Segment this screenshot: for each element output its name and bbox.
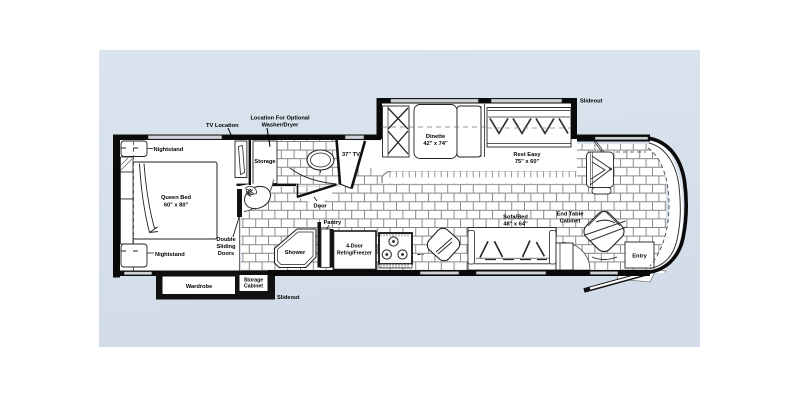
svg-text:Doors: Doors	[218, 251, 234, 257]
svg-text:Dinette: Dinette	[426, 134, 445, 140]
svg-text:Shower: Shower	[285, 250, 306, 256]
svg-text:Refrig/Freezer: Refrig/Freezer	[337, 251, 372, 257]
svg-text:TV Location: TV Location	[206, 123, 239, 129]
svg-text:75" x 60": 75" x 60"	[515, 159, 540, 165]
svg-text:Sofa/Bed: Sofa/Bed	[503, 215, 528, 221]
svg-text:Cabinet: Cabinet	[244, 284, 263, 290]
svg-text:Entry: Entry	[632, 254, 647, 260]
svg-text:37" TV: 37" TV	[342, 152, 360, 158]
svg-text:Storage: Storage	[254, 159, 275, 165]
svg-text:Wardrobe: Wardrobe	[186, 284, 212, 290]
svg-text:Pantry: Pantry	[324, 220, 343, 226]
svg-text:4-Door: 4-Door	[346, 244, 363, 250]
svg-text:Double: Double	[216, 237, 235, 243]
svg-text:Location For Optional: Location For Optional	[250, 116, 310, 122]
svg-text:Door: Door	[314, 204, 328, 210]
svg-text:60" x 80": 60" x 80"	[164, 203, 189, 209]
svg-text:Nightstand: Nightstand	[154, 147, 184, 153]
svg-text:End Table: End Table	[557, 212, 584, 218]
svg-text:42" x 74": 42" x 74"	[423, 141, 448, 147]
svg-text:Slideout: Slideout	[580, 99, 603, 105]
svg-text:Queen Bed: Queen Bed	[161, 195, 192, 201]
svg-text:Nightstand: Nightstand	[155, 252, 185, 258]
svg-text:48" x 64": 48" x 64"	[503, 222, 528, 228]
svg-text:Slideout: Slideout	[277, 295, 300, 301]
svg-text:Washer/Dryer: Washer/Dryer	[262, 123, 300, 129]
svg-text:Cabinet: Cabinet	[560, 219, 581, 225]
svg-text:Sliding: Sliding	[217, 244, 236, 250]
svg-text:Rest Easy: Rest Easy	[513, 152, 541, 158]
